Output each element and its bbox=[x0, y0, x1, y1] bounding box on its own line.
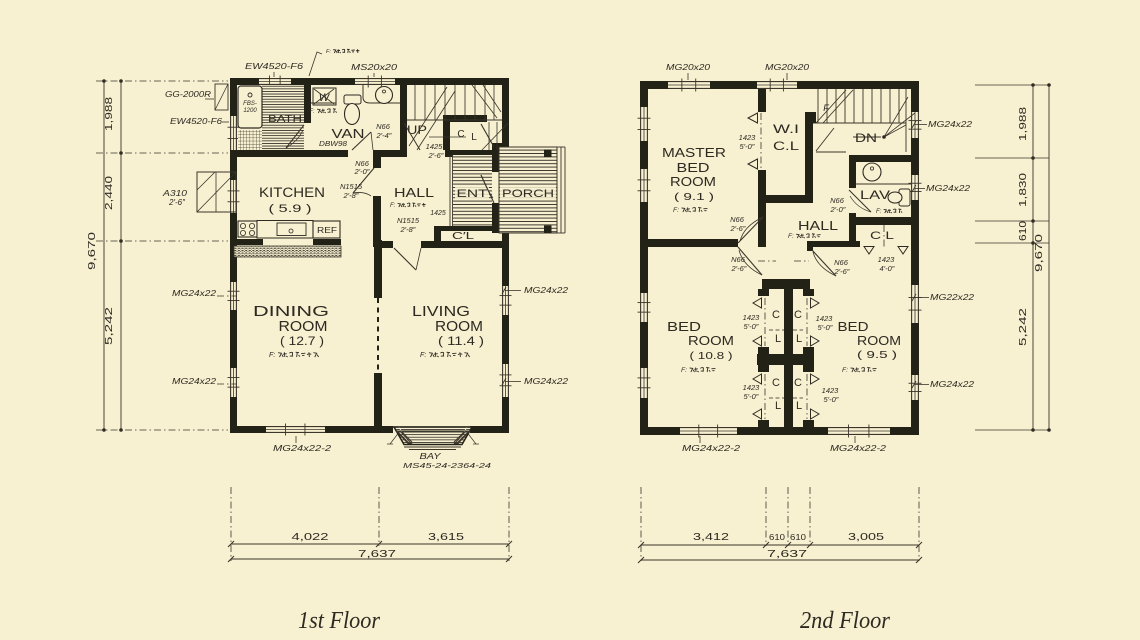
svg-text:L: L bbox=[796, 400, 802, 412]
svg-text:5,242: 5,242 bbox=[1017, 308, 1029, 346]
svg-text:1423: 1423 bbox=[816, 314, 834, 323]
svg-text:L: L bbox=[796, 333, 802, 345]
svg-text:7,637: 7,637 bbox=[358, 548, 396, 560]
svg-text:1200: 1200 bbox=[243, 108, 257, 114]
svg-text:2,440: 2,440 bbox=[103, 176, 115, 210]
svg-text:2′-6″: 2′-6″ bbox=[730, 224, 746, 233]
svg-text:HALL: HALL bbox=[798, 219, 838, 233]
svg-text:N66: N66 bbox=[830, 196, 845, 205]
svg-text:MG20x20: MG20x20 bbox=[666, 63, 711, 72]
svg-text:L: L bbox=[775, 400, 781, 412]
svg-text:MS20x20: MS20x20 bbox=[351, 63, 398, 72]
svg-text:DINING: DINING bbox=[253, 304, 329, 320]
svg-text:N66: N66 bbox=[834, 258, 849, 267]
svg-text:ROOM: ROOM bbox=[435, 319, 483, 335]
svg-text:4′-0″: 4′-0″ bbox=[880, 264, 895, 273]
svg-text:2′-6″: 2′-6″ bbox=[731, 264, 747, 273]
svg-text:F:: F: bbox=[673, 207, 679, 214]
svg-text:( 9.1 ): ( 9.1 ) bbox=[674, 191, 714, 203]
svg-text:EW4520-F6: EW4520-F6 bbox=[170, 117, 223, 126]
svg-text:2′-8″: 2′-8″ bbox=[400, 225, 416, 234]
svg-text:C: C bbox=[457, 129, 464, 140]
svg-text:PORCH: PORCH bbox=[502, 188, 554, 200]
svg-text:VAN: VAN bbox=[332, 127, 365, 141]
svg-text:GG-2000R: GG-2000R bbox=[165, 90, 211, 99]
svg-text:3,615: 3,615 bbox=[428, 531, 464, 543]
svg-text:1,988: 1,988 bbox=[1017, 107, 1029, 141]
svg-text:( 10.8 ): ( 10.8 ) bbox=[690, 350, 733, 362]
svg-text:A310: A310 bbox=[162, 189, 188, 198]
svg-text:HALL: HALL bbox=[394, 186, 434, 200]
svg-text:1423: 1423 bbox=[878, 255, 896, 264]
svg-text:MG24x22: MG24x22 bbox=[172, 377, 217, 386]
svg-text:L: L bbox=[775, 333, 781, 345]
svg-text:MG24x22: MG24x22 bbox=[928, 120, 973, 129]
svg-text:5′-0″: 5′-0″ bbox=[824, 395, 839, 404]
svg-text:N66: N66 bbox=[730, 215, 745, 224]
svg-text:ROOM: ROOM bbox=[688, 334, 734, 348]
svg-text:5,242: 5,242 bbox=[103, 307, 115, 345]
svg-text:C: C bbox=[772, 377, 780, 389]
svg-text:DBW98: DBW98 bbox=[319, 141, 347, 148]
svg-text:1425: 1425 bbox=[430, 210, 446, 217]
svg-text:C: C bbox=[794, 309, 802, 321]
svg-text:1423: 1423 bbox=[739, 133, 757, 142]
svg-text:5′-0″: 5′-0″ bbox=[740, 142, 755, 151]
svg-text:1st Floor: 1st Floor bbox=[298, 608, 381, 634]
svg-text:KITCHEN: KITCHEN bbox=[259, 185, 325, 200]
svg-text:1423: 1423 bbox=[743, 383, 761, 392]
svg-text:MS45-24-2364-24: MS45-24-2364-24 bbox=[403, 461, 491, 470]
svg-text:C.L: C.L bbox=[773, 141, 800, 153]
svg-text:4,022: 4,022 bbox=[292, 531, 329, 543]
svg-text:610: 610 bbox=[769, 532, 785, 542]
svg-text:2nd Floor: 2nd Floor bbox=[800, 608, 891, 634]
svg-text:2′-6″: 2′-6″ bbox=[168, 198, 186, 207]
svg-text:MG24x22-2: MG24x22-2 bbox=[830, 444, 887, 453]
svg-text:9,670: 9,670 bbox=[86, 232, 98, 270]
svg-text:ROOM: ROOM bbox=[857, 334, 901, 348]
svg-text:( 9.5 ): ( 9.5 ) bbox=[857, 349, 897, 361]
svg-text:610: 610 bbox=[790, 532, 806, 542]
svg-text:ENT: ENT bbox=[457, 188, 488, 200]
svg-text:2′-0″: 2′-0″ bbox=[830, 205, 846, 214]
svg-text:N66: N66 bbox=[731, 255, 746, 264]
svg-text:BATH: BATH bbox=[268, 113, 302, 125]
svg-text:610: 610 bbox=[1017, 221, 1029, 241]
svg-text:2′-6″: 2′-6″ bbox=[834, 267, 850, 276]
svg-text:( 5.9 ): ( 5.9 ) bbox=[269, 203, 312, 215]
svg-text:DN: DN bbox=[855, 131, 877, 145]
svg-text:1423: 1423 bbox=[743, 313, 761, 322]
svg-text:L: L bbox=[471, 132, 477, 143]
svg-text:F:: F: bbox=[390, 203, 396, 209]
svg-text:W.I: W.I bbox=[773, 124, 799, 136]
svg-text:MG24x22: MG24x22 bbox=[524, 286, 569, 295]
svg-text:( 11.4 ): ( 11.4 ) bbox=[438, 336, 484, 348]
svg-text:BAY: BAY bbox=[420, 451, 443, 461]
svg-text:F:: F: bbox=[269, 351, 275, 359]
svg-text:MG24x22-2: MG24x22-2 bbox=[682, 444, 741, 453]
svg-text:9,670: 9,670 bbox=[1033, 234, 1045, 272]
svg-text:BED: BED bbox=[838, 320, 869, 334]
svg-text:REF: REF bbox=[317, 225, 337, 235]
svg-text:F:: F: bbox=[309, 108, 315, 115]
svg-text:F:: F: bbox=[420, 351, 426, 359]
svg-text:BED: BED bbox=[667, 320, 701, 334]
svg-text:UP: UP bbox=[407, 123, 427, 137]
svg-text:5′-0″: 5′-0″ bbox=[744, 392, 759, 401]
svg-text:MASTER: MASTER bbox=[662, 146, 726, 160]
svg-text:ROOM: ROOM bbox=[279, 319, 328, 335]
svg-text:2′-6″: 2′-6″ bbox=[428, 151, 444, 160]
svg-text:MG24x22: MG24x22 bbox=[172, 289, 217, 298]
svg-text:1,988: 1,988 bbox=[103, 97, 115, 131]
svg-text:3,412: 3,412 bbox=[693, 531, 729, 543]
svg-text:F:: F: bbox=[788, 233, 794, 240]
svg-text:ROOM: ROOM bbox=[670, 175, 716, 189]
svg-text:5′-0″: 5′-0″ bbox=[744, 322, 759, 331]
svg-text:N1515: N1515 bbox=[397, 216, 420, 225]
svg-text:FBS-: FBS- bbox=[243, 101, 257, 107]
svg-text:F:: F: bbox=[876, 209, 882, 215]
svg-text:1425: 1425 bbox=[426, 142, 444, 151]
svg-text:MG24x22-2: MG24x22-2 bbox=[273, 444, 332, 453]
svg-text:1,830: 1,830 bbox=[1017, 173, 1029, 207]
svg-text:F:: F: bbox=[326, 49, 331, 55]
svg-text:MG20x20: MG20x20 bbox=[765, 63, 810, 72]
svg-text:N66: N66 bbox=[376, 122, 391, 131]
svg-text:2′-4″: 2′-4″ bbox=[376, 131, 392, 140]
svg-text:F: F bbox=[823, 103, 829, 113]
svg-text:F:: F: bbox=[842, 367, 848, 374]
svg-text:C: C bbox=[772, 309, 780, 321]
svg-text:C′L: C′L bbox=[452, 231, 475, 242]
svg-text:C L: C L bbox=[870, 230, 894, 242]
svg-text:1423: 1423 bbox=[822, 386, 840, 395]
svg-text:( 12.7 ): ( 12.7 ) bbox=[280, 336, 324, 348]
svg-text:MG24x22: MG24x22 bbox=[926, 184, 971, 193]
svg-text:MG24x22: MG24x22 bbox=[930, 380, 975, 389]
svg-text:LAV: LAV bbox=[860, 190, 890, 202]
svg-text:MG22x22: MG22x22 bbox=[930, 293, 975, 302]
svg-text:BED: BED bbox=[677, 161, 710, 175]
svg-text:3,005: 3,005 bbox=[848, 531, 884, 543]
svg-text:LIVING: LIVING bbox=[412, 304, 470, 320]
svg-text:2′-0″: 2′-0″ bbox=[354, 167, 370, 176]
svg-text:EW4520-F6: EW4520-F6 bbox=[245, 62, 304, 71]
svg-text:MG24x22: MG24x22 bbox=[524, 377, 569, 386]
svg-text:F:: F: bbox=[681, 367, 687, 374]
svg-text:5′-0″: 5′-0″ bbox=[818, 323, 833, 332]
svg-text:W: W bbox=[319, 92, 331, 104]
svg-text:C: C bbox=[794, 377, 802, 389]
svg-text:N1515: N1515 bbox=[340, 182, 363, 191]
svg-text:7,637: 7,637 bbox=[767, 548, 807, 560]
